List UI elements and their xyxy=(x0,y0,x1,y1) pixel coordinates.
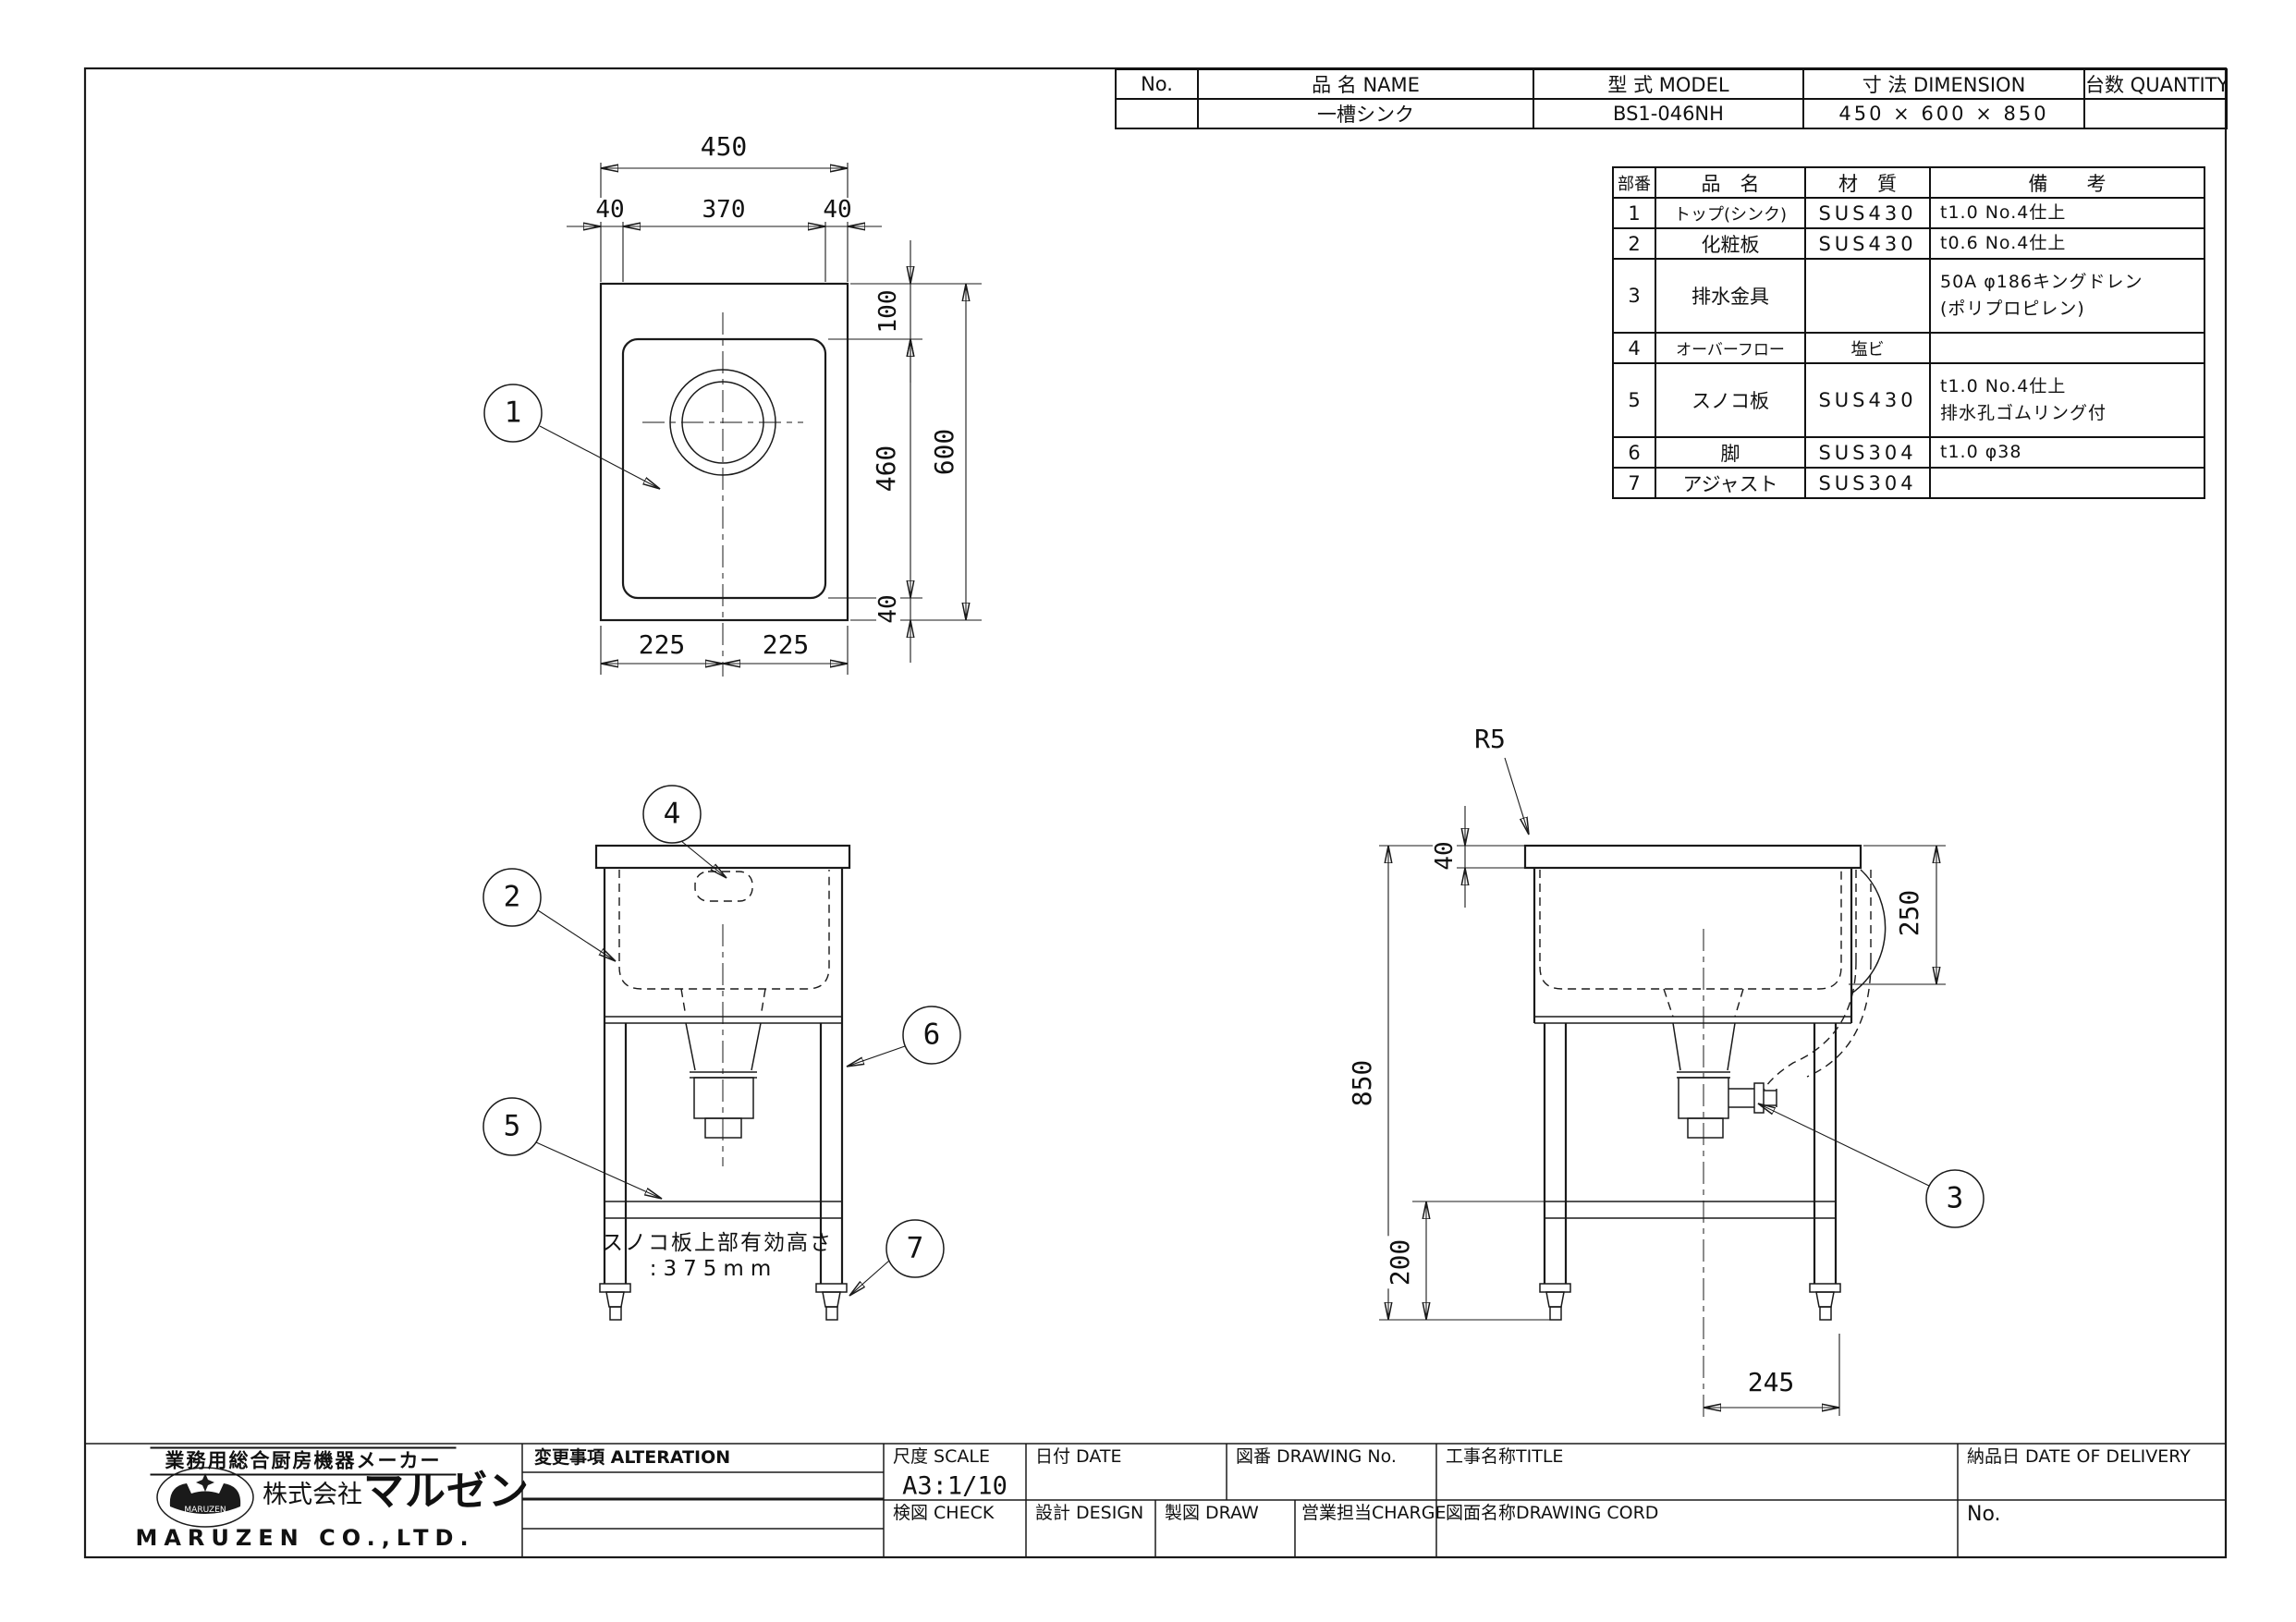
dim-plan-top-inset: 100 xyxy=(876,287,900,336)
dim-plan-half-left: 225 xyxy=(636,632,689,658)
side-view xyxy=(1379,758,1946,1420)
header-col-model: 型 式 MODEL xyxy=(1533,69,1803,99)
parts-row-4: 4 オーバーフロー 塩ビ xyxy=(1613,333,2204,363)
design-label: 設計 DESIGN xyxy=(1035,1505,1143,1522)
part-no: 5 xyxy=(1613,363,1655,437)
dim-plan-sink-length: 460 xyxy=(873,443,899,495)
product-name: 一槽シンク xyxy=(1198,99,1533,128)
callout-leaders xyxy=(483,384,1984,1296)
header-col-dimension: 寸 法 DIMENSION xyxy=(1803,69,2084,99)
front-note-line1: スノコ板上部有効高さ xyxy=(602,1225,833,1256)
part-name: スノコ板 xyxy=(1655,363,1805,437)
parts-col-name: 品 名 xyxy=(1655,167,1805,198)
maruzen-logo-icon: MARUZEN xyxy=(157,1468,253,1527)
charge-label: 営業担当CHARGE xyxy=(1301,1505,1446,1522)
company-en: MARUZEN CO.,LTD. xyxy=(135,1527,474,1549)
part-material: 塩ビ xyxy=(1805,333,1930,363)
part-name: 化粧板 xyxy=(1655,228,1805,259)
parts-table-head-row: 部番 品 名 材 質 備 考 xyxy=(1613,167,2204,198)
draw-label: 製図 DRAW xyxy=(1165,1505,1259,1522)
callout-4: 4 xyxy=(664,800,681,829)
part-no: 2 xyxy=(1613,228,1655,259)
part-name: 脚 xyxy=(1655,437,1805,468)
parts-row-3: 3 排水金具 50A φ186キングドレン (ポリプロピレン) xyxy=(1613,259,2204,333)
part-no: 6 xyxy=(1613,437,1655,468)
callout-3: 3 xyxy=(1947,1185,1964,1213)
product-dimension: 450 × 600 × 850 xyxy=(1803,99,2084,128)
part-remark: 50A φ186キングドレン xyxy=(1940,269,2204,296)
dim-side-bowl-depth: 250 xyxy=(1897,887,1923,940)
drawing-no-label: 図番 DRAWING No. xyxy=(1236,1448,1397,1466)
plan-view xyxy=(567,163,982,677)
dim-plan-inner-width: 370 xyxy=(700,198,749,222)
dim-side-overall-height: 850 xyxy=(1350,1057,1375,1110)
part-name: 排水金具 xyxy=(1655,259,1805,333)
callout-5: 5 xyxy=(504,1113,521,1141)
part-material: SUS304 xyxy=(1805,437,1930,468)
part-material: SUS304 xyxy=(1805,468,1930,498)
parts-row-5: 5 スノコ板 SUS430 t1.0 No.4仕上 排水孔ゴムリング付 xyxy=(1613,363,2204,437)
product-model: BS1-046NH xyxy=(1533,99,1803,128)
part-name: アジャスト xyxy=(1655,468,1805,498)
front-note-line2: :375mm xyxy=(650,1257,777,1281)
parts-row-7: 7 アジャスト SUS304 xyxy=(1613,468,2204,498)
part-remark: t1.0 No.4仕上 xyxy=(1940,200,2204,226)
dim-plan-bottom-inset: 40 xyxy=(876,591,900,626)
parts-table: 部番 品 名 材 質 備 考 1 トップ(シンク) SUS430 t1.0 No… xyxy=(1612,166,2205,499)
part-remark: t1.0 No.4仕上 xyxy=(1940,373,2204,400)
title-label: 工事名称TITLE xyxy=(1446,1448,1563,1466)
product-no xyxy=(1116,99,1198,128)
part-material: SUS430 xyxy=(1805,228,1930,259)
part-material: SUS430 xyxy=(1805,363,1930,437)
company-prefix: 株式会社 xyxy=(263,1482,362,1507)
product-quantity xyxy=(2084,99,2227,128)
parts-row-6: 6 脚 SUS304 t1.0 φ38 xyxy=(1613,437,2204,468)
header-table-data-row: 一槽シンク BS1-046NH 450 × 600 × 850 xyxy=(1116,99,2227,128)
dim-plan-half-right: 225 xyxy=(760,632,812,658)
callout-2: 2 xyxy=(504,884,521,912)
part-remark: t0.6 No.4仕上 xyxy=(1940,230,2204,257)
part-no: 7 xyxy=(1613,468,1655,498)
parts-row-2: 2 化粧板 SUS430 t0.6 No.4仕上 xyxy=(1613,228,2204,259)
drawing-cord-label: 図面名称DRAWING CORD xyxy=(1446,1505,1658,1522)
parts-row-1: 1 トップ(シンク) SUS430 t1.0 No.4仕上 xyxy=(1613,198,2204,228)
scale-value: A3:1/10 xyxy=(902,1474,1008,1499)
part-name: オーバーフロー xyxy=(1655,333,1805,363)
svg-text:MARUZEN: MARUZEN xyxy=(184,1506,226,1515)
delivery-label: 納品日 DATE OF DELIVERY xyxy=(1967,1448,2191,1466)
dim-side-top-height: 40 xyxy=(1433,838,1457,872)
part-remark: t1.0 φ38 xyxy=(1940,439,2204,466)
part-material xyxy=(1805,259,1930,333)
part-no: 1 xyxy=(1613,198,1655,228)
check-label: 検図 CHECK xyxy=(893,1505,994,1522)
header-table: No. 品 名 NAME 型 式 MODEL 寸 法 DIMENSION 台数 … xyxy=(1115,68,2228,129)
part-no: 4 xyxy=(1613,333,1655,363)
dim-side-shelf-height: 200 xyxy=(1387,1237,1413,1289)
parts-col-material: 材 質 xyxy=(1805,167,1930,198)
callout-6: 6 xyxy=(923,1021,941,1050)
dim-side-corner-radius: R5 xyxy=(1472,726,1508,752)
dim-plan-width: 450 xyxy=(698,134,751,160)
date-label: 日付 DATE xyxy=(1035,1448,1121,1466)
part-no: 3 xyxy=(1613,259,1655,333)
scale-label: 尺度 SCALE xyxy=(893,1448,990,1466)
brand-logo-text: マルゼン xyxy=(363,1471,530,1512)
part-remark-2: 排水孔ゴムリング付 xyxy=(1940,400,2204,427)
header-col-no: No. xyxy=(1116,69,1198,99)
callout-7: 7 xyxy=(907,1235,924,1263)
no-label: No. xyxy=(1967,1505,2001,1525)
header-col-name: 品 名 NAME xyxy=(1198,69,1533,99)
alteration-label: 変更事項 ALTERATION xyxy=(534,1449,730,1467)
parts-col-no: 部番 xyxy=(1613,167,1655,198)
header-col-quantity: 台数 QUANTITY xyxy=(2084,69,2227,99)
parts-col-remark: 備 考 xyxy=(1930,167,2204,198)
dim-side-drain-offset: 245 xyxy=(1745,1370,1798,1396)
part-name: トップ(シンク) xyxy=(1655,198,1805,228)
part-material: SUS430 xyxy=(1805,198,1930,228)
dim-plan-depth: 600 xyxy=(932,426,958,479)
dim-plan-right-edge: 40 xyxy=(820,198,854,222)
part-remark-2: (ポリプロピレン) xyxy=(1940,296,2204,323)
header-table-head-row: No. 品 名 NAME 型 式 MODEL 寸 法 DIMENSION 台数 … xyxy=(1116,69,2227,99)
callout-1: 1 xyxy=(505,399,522,428)
dim-plan-left-edge: 40 xyxy=(592,198,627,222)
drawing-sheet: MARUZEN 450 40 370 40 100 460 600 40 225… xyxy=(0,0,2296,1622)
